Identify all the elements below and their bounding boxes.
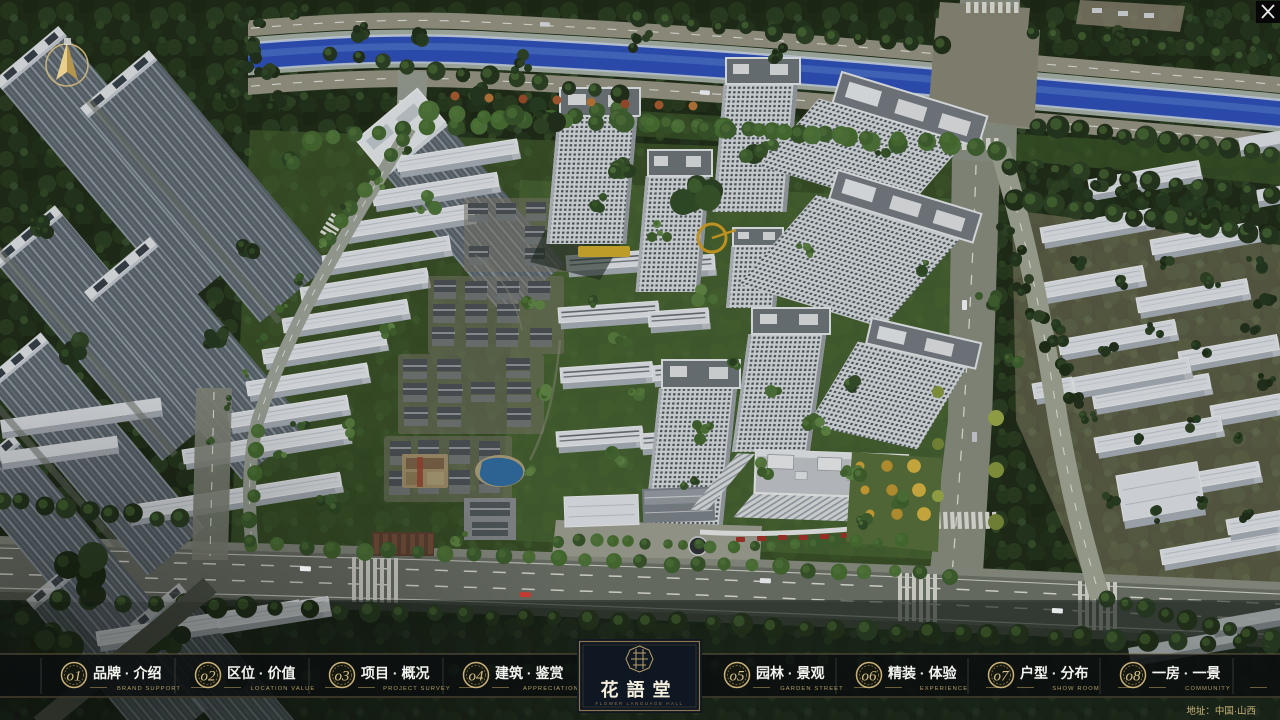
svg-text:项目 · 概况: 项目 · 概况 xyxy=(361,665,429,681)
svg-text:GARDEN STREET: GARDEN STREET xyxy=(780,686,844,692)
svg-text:户型 · 分布: 户型 · 分布 xyxy=(1020,665,1088,681)
svg-text:EXPERIENCE: EXPERIENCE xyxy=(920,686,968,692)
svg-text:区位 · 价值: 区位 · 价值 xyxy=(227,665,295,681)
svg-text:o1: o1 xyxy=(67,669,82,685)
svg-text:o6: o6 xyxy=(862,669,878,685)
svg-text:一房 · 一景: 一房 · 一景 xyxy=(1152,665,1220,681)
svg-text:建筑 · 鉴赏: 建筑 · 鉴赏 xyxy=(495,665,563,681)
svg-text:PROJECT SURVEY: PROJECT SURVEY xyxy=(383,686,451,692)
svg-text:COMMUNITY: COMMUNITY xyxy=(1185,686,1231,692)
svg-text:SHOW ROOM: SHOW ROOM xyxy=(1052,686,1100,692)
svg-text:花語堂: 花語堂 xyxy=(601,679,679,700)
svg-text:APPRECIATION: APPRECIATION xyxy=(523,686,579,692)
svg-text:FLOWER LANGUAGE HALL: FLOWER LANGUAGE HALL xyxy=(595,701,683,706)
svg-text:园林 · 景观: 园林 · 景观 xyxy=(756,665,824,681)
svg-text:精装 · 体验: 精装 · 体验 xyxy=(888,665,957,681)
svg-text:o4: o4 xyxy=(469,669,485,685)
svg-text:o2: o2 xyxy=(201,669,217,685)
svg-text:o8: o8 xyxy=(1126,669,1142,685)
svg-text:地址：中国·山西: 地址：中国·山西 xyxy=(1186,705,1256,717)
svg-text:o3: o3 xyxy=(335,669,350,685)
svg-text:LOCATION VALUE: LOCATION VALUE xyxy=(251,686,316,692)
svg-text:品牌 · 介绍: 品牌 · 介绍 xyxy=(93,665,161,681)
svg-text:o5: o5 xyxy=(730,669,746,685)
svg-text:BRAND SUPPORT: BRAND SUPPORT xyxy=(117,686,181,692)
svg-text:o7: o7 xyxy=(994,669,1011,685)
